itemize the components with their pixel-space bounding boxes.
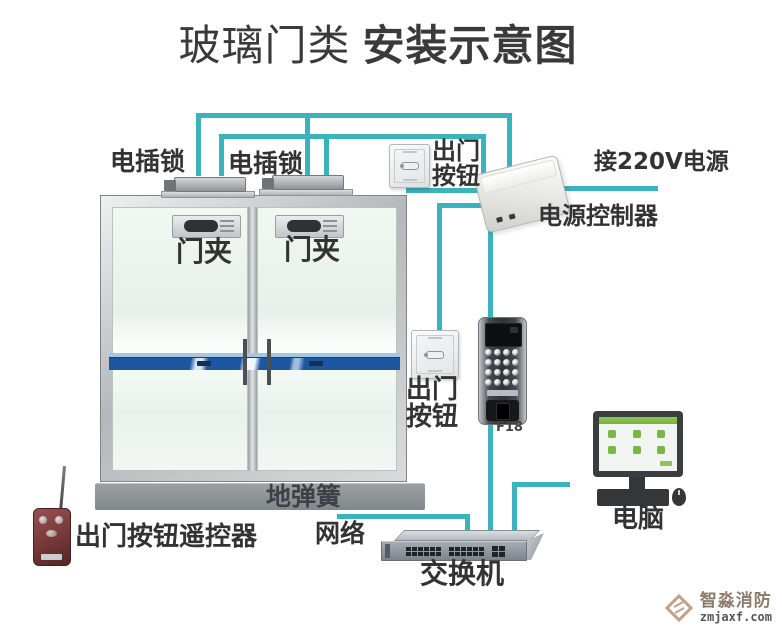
switch-port-group: [449, 547, 484, 556]
clamp-marking: [220, 225, 234, 227]
clamp-marking: [323, 230, 337, 232]
port: [418, 547, 423, 551]
exit-button-key-dot: [424, 353, 428, 357]
label-bolt-lock-right: 电插锁: [228, 151, 303, 177]
wire-lock1-drop-outer: [196, 113, 201, 176]
monitor-stand: [629, 477, 645, 489]
band-latch-mark: [309, 361, 323, 366]
computer-mouse: [672, 488, 686, 506]
page-title: 玻璃门类安装示意图: [0, 12, 782, 73]
bolt-lock-end: [164, 180, 176, 191]
remote-button: [46, 530, 57, 537]
watermark-text: 智淼消防 zmjaxf.com: [700, 592, 772, 624]
label-network: 网络: [315, 521, 365, 547]
clamp-marking: [323, 220, 337, 222]
switch-port-area: [406, 546, 505, 557]
port: [455, 547, 460, 551]
port: [455, 552, 460, 556]
floor-spring-bar: [95, 483, 425, 510]
app-icon: [608, 430, 616, 438]
door-handle-right: [267, 339, 271, 385]
clamp-marking: [323, 225, 337, 227]
fingerprint-slot: [496, 403, 510, 420]
key-dot: [494, 359, 501, 366]
diagram-page: 玻璃门类安装示意图: [0, 0, 782, 632]
key-dot: [485, 359, 492, 366]
bolt-lock-left: [161, 177, 255, 198]
monitor-screen: [599, 417, 677, 471]
app-icon: [633, 446, 641, 454]
port: [467, 552, 472, 556]
f18-keypad: [485, 349, 521, 387]
remote-control: [33, 508, 71, 566]
port: [436, 552, 441, 556]
door-center-divider: [248, 207, 257, 471]
button-marking: [428, 370, 442, 372]
port: [449, 547, 454, 551]
wire-f18-switch-link: [488, 424, 493, 537]
port: [406, 552, 411, 556]
label-f18-model: F18: [496, 421, 523, 435]
key-dot: [503, 359, 510, 366]
watermark-brand: 智淼消防: [700, 592, 772, 611]
clamp-slot: [184, 220, 218, 232]
key-dot: [503, 349, 510, 356]
label-remote-control: 出门按钮遥控器: [75, 524, 257, 551]
switch-sfp-group: [492, 546, 505, 557]
label-exit-button-mid-line2: 按钮: [406, 404, 458, 431]
wire-lock-bus-outer: [196, 113, 512, 118]
computer-monitor: [593, 411, 683, 477]
wire-computer-run: [512, 482, 570, 487]
f18-logo-strip: [487, 390, 518, 396]
bolt-lock-body: [174, 177, 246, 192]
port: [499, 546, 505, 551]
port: [492, 546, 498, 551]
switch-port-group: [406, 547, 441, 556]
label-bolt-lock-left: 电插锁: [110, 149, 185, 175]
label-mains-220v: 接220V电源: [594, 151, 729, 175]
clamp-marking: [220, 230, 234, 232]
door-handle-left: [243, 339, 247, 385]
power-controller-port: [509, 213, 516, 219]
bolt-lock-end: [262, 178, 274, 189]
port: [436, 547, 441, 551]
exit-button-key-dot: [400, 164, 404, 168]
port: [412, 552, 417, 556]
key-dot: [494, 349, 501, 356]
remote-antenna: [59, 466, 66, 512]
label-exit-button-mid: 出门 按钮: [406, 377, 458, 431]
port: [479, 552, 484, 556]
power-controller-lid: [480, 159, 558, 194]
key-dot: [485, 379, 492, 386]
port: [467, 547, 472, 551]
glass-door-assembly: [100, 195, 407, 482]
software-title-bar: [599, 417, 677, 424]
key-dot: [512, 349, 519, 356]
bolt-lock-base: [161, 191, 255, 198]
remote-button: [39, 516, 47, 524]
key-dot: [512, 379, 519, 386]
key-dot: [494, 379, 501, 386]
key-dot: [494, 369, 501, 376]
bolt-lock-right: [259, 175, 353, 196]
port: [424, 552, 429, 556]
label-exit-button-top: 出门 按钮: [432, 139, 480, 189]
key-dot: [512, 359, 519, 366]
mid-rail-blue-band: [109, 357, 400, 370]
f18-screen: [485, 323, 522, 347]
label-exit-button-top-line1: 出门: [432, 139, 480, 164]
key-dot: [512, 369, 519, 376]
f18-fingerprint-reader: [486, 400, 519, 421]
label-floor-spring: 地弹簧: [266, 484, 341, 510]
app-icon: [657, 446, 665, 454]
brand-diamond-icon: [664, 593, 694, 623]
remote-button: [55, 516, 63, 524]
wire-controller-f18-link: [488, 226, 493, 317]
label-computer: 电脑: [612, 506, 664, 533]
port: [473, 552, 478, 556]
key-dot: [503, 379, 510, 386]
title-emphasis: 安装示意图: [363, 21, 578, 70]
app-icon: [657, 430, 665, 438]
switch-rack-bracket: [385, 544, 390, 558]
key-dot: [485, 369, 492, 376]
exit-button-top: [389, 144, 430, 188]
app-icon: [633, 430, 641, 438]
button-marking: [403, 151, 417, 153]
port: [406, 547, 411, 551]
f18-screen-glint: [510, 327, 518, 333]
port: [418, 552, 423, 556]
wire-controller-left-run: [437, 203, 485, 208]
clamp-marking: [220, 220, 234, 222]
wire-lock1-drop-inner: [219, 134, 224, 176]
key-dot: [485, 349, 492, 356]
title-prefix: 玻璃门类: [178, 21, 350, 70]
app-icon: [608, 446, 616, 454]
label-power-controller: 电源控制器: [538, 204, 658, 229]
port: [479, 547, 484, 551]
software-button: [660, 461, 672, 466]
software-icon-grid: [608, 430, 670, 454]
wire-mains-run: [558, 186, 658, 191]
port: [461, 552, 466, 556]
wire-lock2-drop-inner: [324, 134, 329, 176]
watermark-domain: zmjaxf.com: [700, 611, 772, 624]
port: [430, 552, 435, 556]
watermark: 智淼消防 zmjaxf.com: [664, 592, 772, 624]
button-marking: [428, 337, 442, 339]
label-door-clamp-right: 门夹: [284, 235, 340, 264]
label-exit-button-mid-line1: 出门: [406, 377, 458, 404]
exit-button-mid: [411, 330, 459, 379]
band-latch-mark: [197, 361, 211, 366]
button-marking: [403, 179, 417, 181]
port: [473, 547, 478, 551]
mouse-wheel: [678, 490, 680, 495]
port: [424, 547, 429, 551]
label-exit-button-top-line2: 按钮: [432, 164, 480, 189]
label-switch: 交换机: [420, 559, 504, 588]
power-controller-port: [496, 217, 503, 223]
remote-label-strip: [41, 554, 62, 560]
bolt-lock-base: [259, 189, 353, 196]
port: [412, 547, 417, 551]
clamp-slot: [287, 220, 321, 232]
f18-access-reader: [478, 317, 527, 425]
port: [449, 552, 454, 556]
exit-button-key-slot: [426, 351, 444, 359]
wire-exitbtn2-riser: [437, 203, 442, 333]
key-dot: [503, 369, 510, 376]
switch-top-face: [394, 530, 540, 541]
wire-lock2-drop-outer: [305, 113, 310, 176]
wire-controller-drop-outer: [507, 113, 512, 168]
label-door-clamp-left: 门夹: [176, 237, 232, 266]
port: [430, 547, 435, 551]
port: [461, 547, 466, 551]
